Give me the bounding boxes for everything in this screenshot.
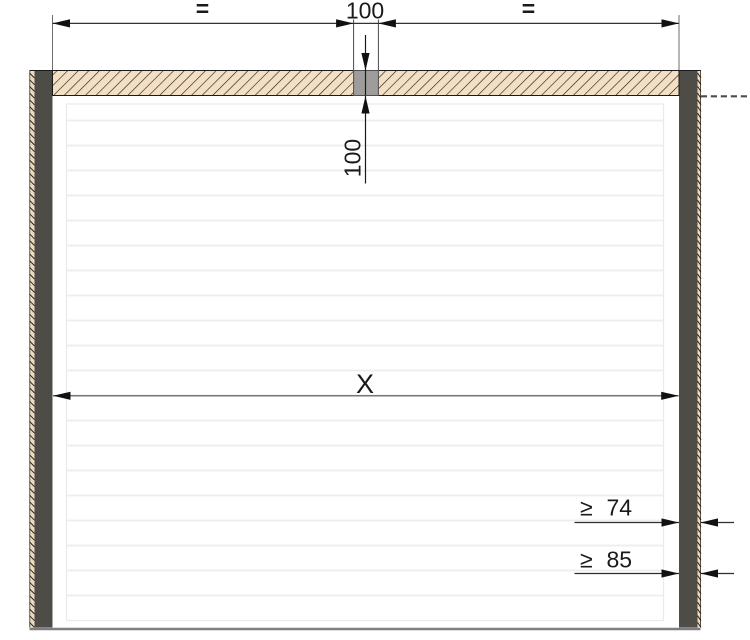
- svg-text:=: =: [196, 0, 209, 22]
- svg-text:74: 74: [607, 495, 633, 521]
- svg-text:85: 85: [607, 547, 633, 573]
- svg-text:=: =: [522, 0, 535, 22]
- svg-text:X: X: [356, 369, 374, 399]
- svg-text:≥: ≥: [580, 547, 593, 573]
- svg-text:≥: ≥: [580, 495, 593, 521]
- svg-text:100: 100: [346, 0, 384, 24]
- svg-text:100: 100: [340, 139, 366, 177]
